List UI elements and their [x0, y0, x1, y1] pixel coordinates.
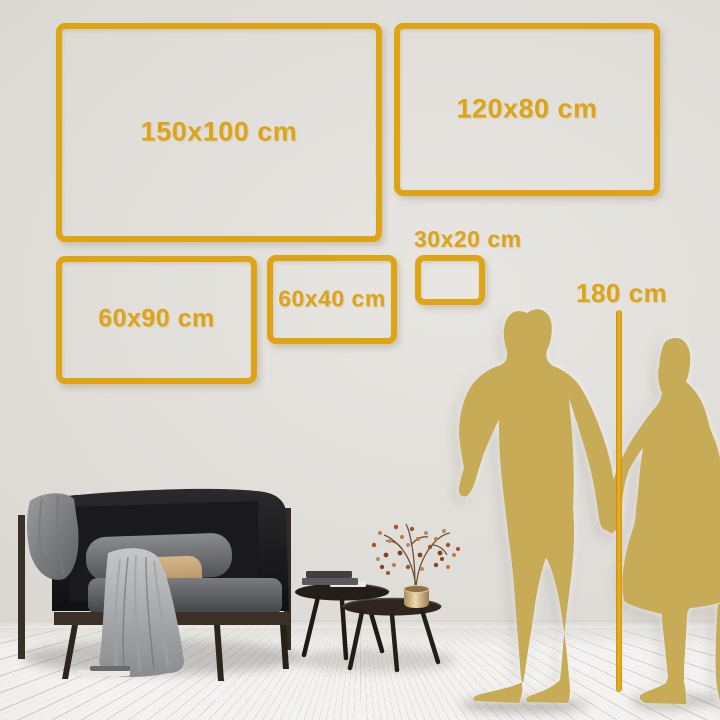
coffee-table-tall	[295, 584, 389, 659]
size-label-30x20: 30x20 cm	[414, 226, 522, 253]
size-label: 60x90 cm	[62, 304, 251, 333]
size-guide-scene: 180 cm 150x100 cm 120x80 cm 60x90 cm 60x…	[0, 0, 720, 720]
size-label: 60x40 cm	[273, 285, 391, 312]
height-ruler-label: 180 cm	[576, 278, 667, 309]
floor-book	[90, 666, 130, 671]
height-ruler-line	[616, 310, 622, 692]
sofa-rear-leg	[18, 515, 25, 659]
brass-vase	[404, 586, 429, 609]
size-frame-120x80: 120x80 cm	[394, 23, 660, 196]
sofa-leg	[214, 625, 224, 681]
table-book	[302, 578, 358, 585]
sofa-leg	[62, 625, 78, 679]
woman-silhouette	[606, 338, 720, 704]
man-silhouette	[459, 309, 617, 703]
sofa	[8, 483, 308, 683]
size-frame-150x100: 150x100 cm	[56, 23, 382, 242]
size-label: 150x100 cm	[62, 116, 376, 147]
size-label: 120x80 cm	[400, 93, 654, 124]
table-book	[306, 571, 352, 578]
size-frame-30x20	[415, 255, 485, 305]
people-silhouettes	[438, 298, 720, 718]
coffee-table-low	[343, 599, 441, 671]
arm-blanket	[27, 493, 78, 580]
woman-second-leg	[716, 602, 720, 704]
size-frame-60x90: 60x90 cm	[56, 256, 257, 384]
size-frame-60x40: 60x40 cm	[267, 255, 397, 344]
